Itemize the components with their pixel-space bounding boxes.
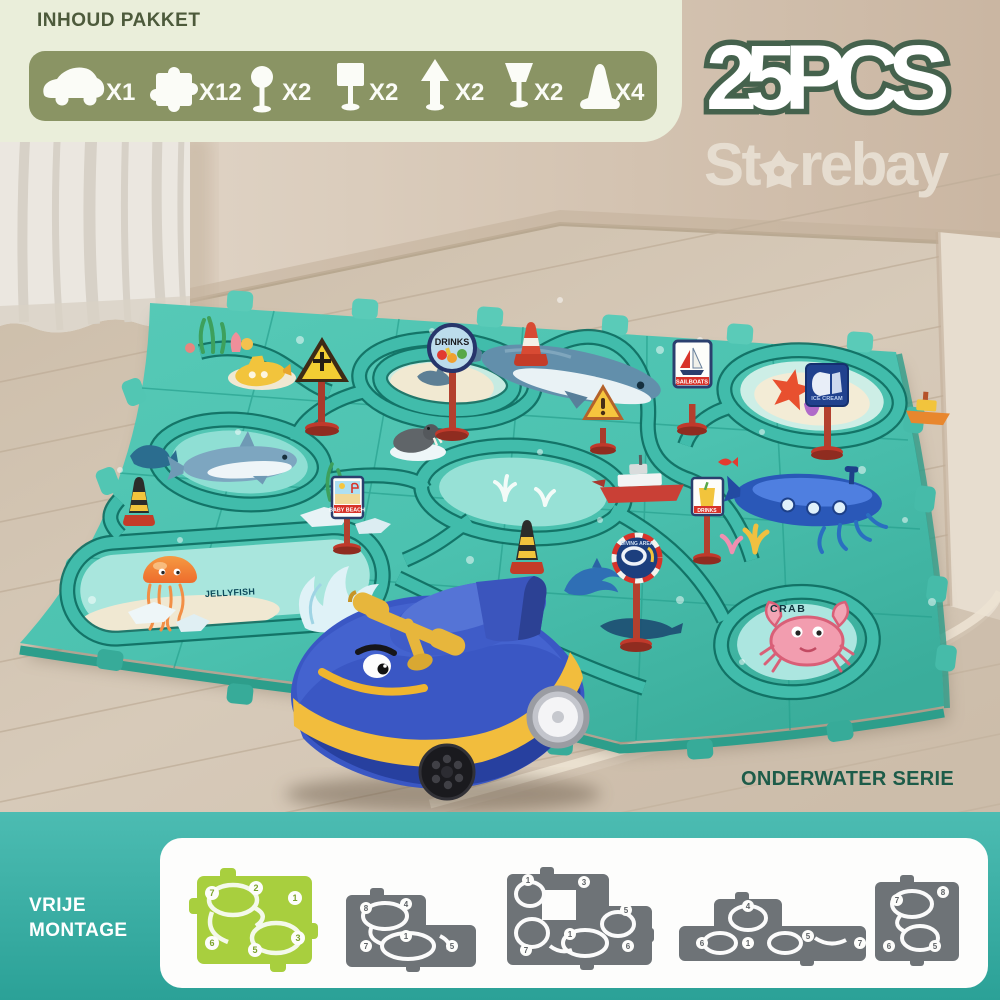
svg-text:X2: X2 [282, 79, 311, 106]
svg-text:5: 5 [450, 942, 455, 951]
svg-text:X2: X2 [455, 79, 484, 106]
svg-text:1: 1 [746, 939, 751, 948]
svg-text:BABY BEACH: BABY BEACH [329, 508, 365, 514]
svg-text:ICE CREAM: ICE CREAM [811, 396, 843, 402]
svg-text:7: 7 [858, 939, 863, 948]
svg-text:7: 7 [364, 942, 369, 951]
svg-text:X2: X2 [534, 79, 563, 106]
svg-text:DRINKS: DRINKS [435, 337, 470, 347]
svg-text:X1: X1 [106, 79, 135, 106]
svg-text:CRAB: CRAB [770, 603, 806, 615]
svg-text:8: 8 [364, 904, 369, 913]
svg-text:6: 6 [626, 942, 631, 951]
svg-text:1: 1 [292, 893, 297, 903]
svg-text:5: 5 [252, 945, 257, 955]
svg-text:SAILBOATS: SAILBOATS [676, 380, 708, 386]
svg-text:7: 7 [209, 888, 214, 898]
svg-text:5: 5 [806, 932, 811, 941]
svg-text:DRINKS: DRINKS [697, 508, 717, 514]
svg-text:DIVING AREA: DIVING AREA [621, 541, 654, 547]
svg-text:4: 4 [404, 900, 409, 909]
svg-text:1: 1 [568, 930, 573, 939]
svg-text:X4: X4 [615, 79, 645, 106]
svg-text:7: 7 [895, 896, 900, 905]
svg-text:6: 6 [209, 938, 214, 948]
svg-text:X2: X2 [369, 79, 398, 106]
svg-text:8: 8 [941, 888, 946, 897]
svg-text:X12: X12 [199, 79, 242, 106]
svg-text:1: 1 [526, 876, 531, 885]
svg-text:4: 4 [746, 902, 751, 911]
svg-text:1: 1 [404, 932, 409, 941]
svg-text:3: 3 [582, 878, 587, 887]
svg-text:6: 6 [700, 939, 705, 948]
svg-text:2: 2 [253, 883, 258, 893]
svg-text:3: 3 [295, 933, 300, 943]
svg-text:6: 6 [887, 942, 892, 951]
svg-text:7: 7 [524, 946, 529, 955]
svg-text:5: 5 [624, 906, 629, 915]
svg-text:5: 5 [933, 942, 938, 951]
